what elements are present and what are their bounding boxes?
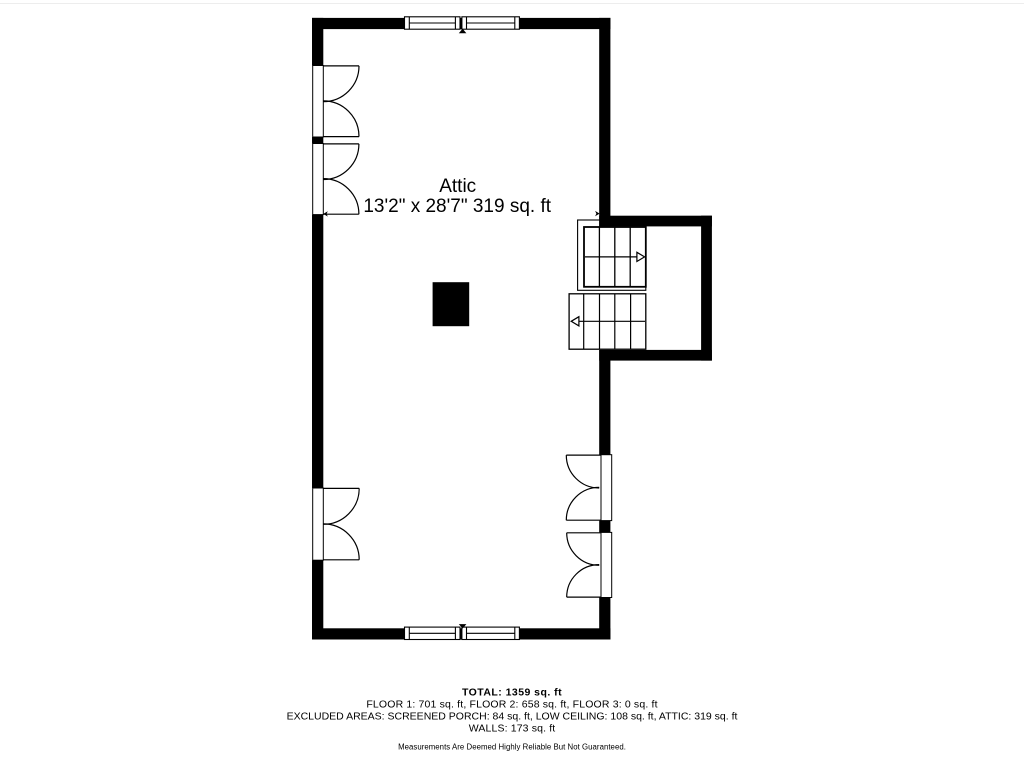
svg-text:FLOOR 1: 701 sq. ft, FLOOR 2:: FLOOR 1: 701 sq. ft, FLOOR 2: 658 sq. ft…	[366, 699, 657, 711]
svg-text:WALLS: 173 sq. ft: WALLS: 173 sq. ft	[469, 723, 556, 735]
svg-text:13'2" x 28'7" 319 sq. ft: 13'2" x 28'7" 319 sq. ft	[363, 196, 551, 217]
svg-text:Attic: Attic	[439, 176, 476, 197]
svg-text:EXCLUDED AREAS: SCREENED PORCH: EXCLUDED AREAS: SCREENED PORCH: 84 sq. f…	[287, 711, 738, 723]
svg-text:Measurements Are Deemed Highly: Measurements Are Deemed Highly Reliable …	[398, 743, 626, 752]
svg-text:TOTAL: 1359 sq. ft: TOTAL: 1359 sq. ft	[462, 687, 562, 699]
